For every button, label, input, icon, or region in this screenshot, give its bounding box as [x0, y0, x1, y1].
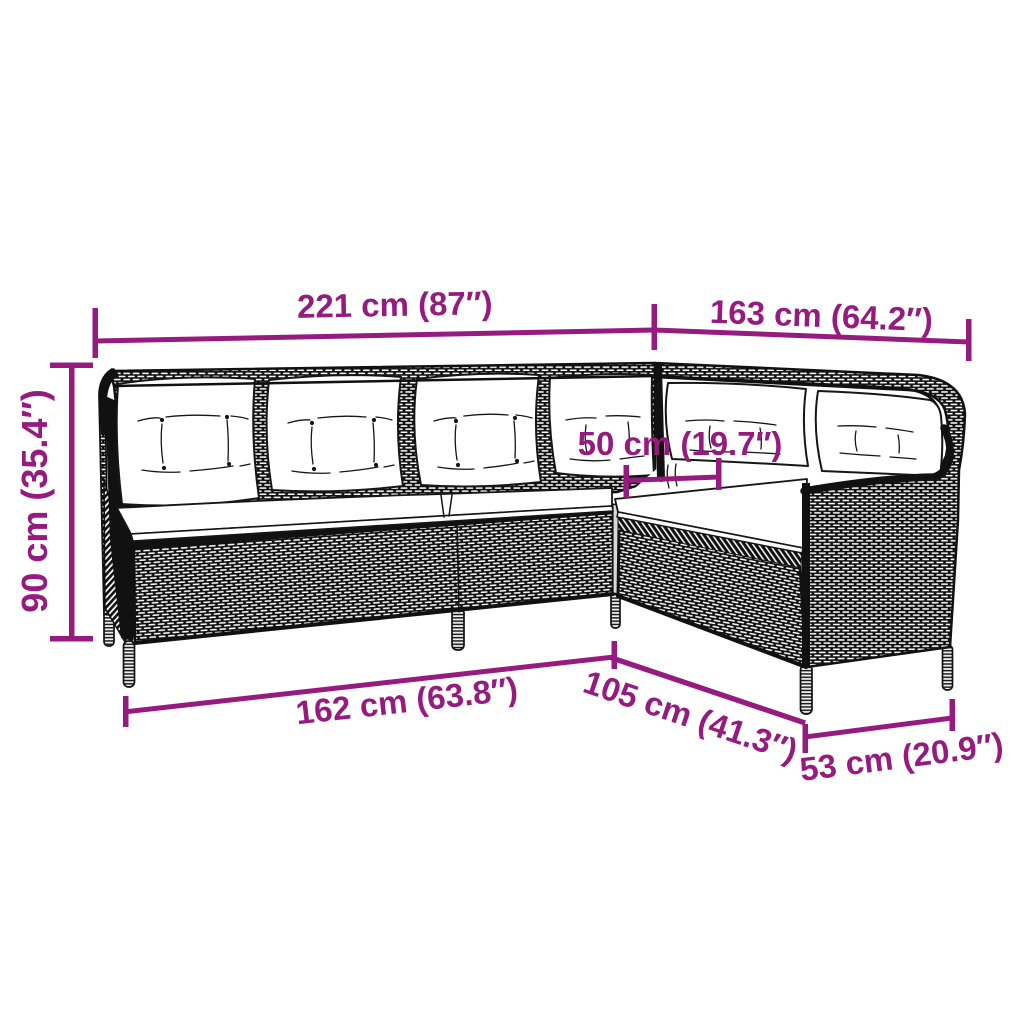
svg-text:221 cm (87″): 221 cm (87″)	[297, 284, 493, 325]
svg-text:90 cm (35.4″): 90 cm (35.4″)	[14, 389, 55, 612]
svg-text:50 cm (19.7″): 50 cm (19.7″)	[578, 425, 783, 462]
svg-text:105 cm (41.3″): 105 cm (41.3″)	[579, 663, 802, 769]
